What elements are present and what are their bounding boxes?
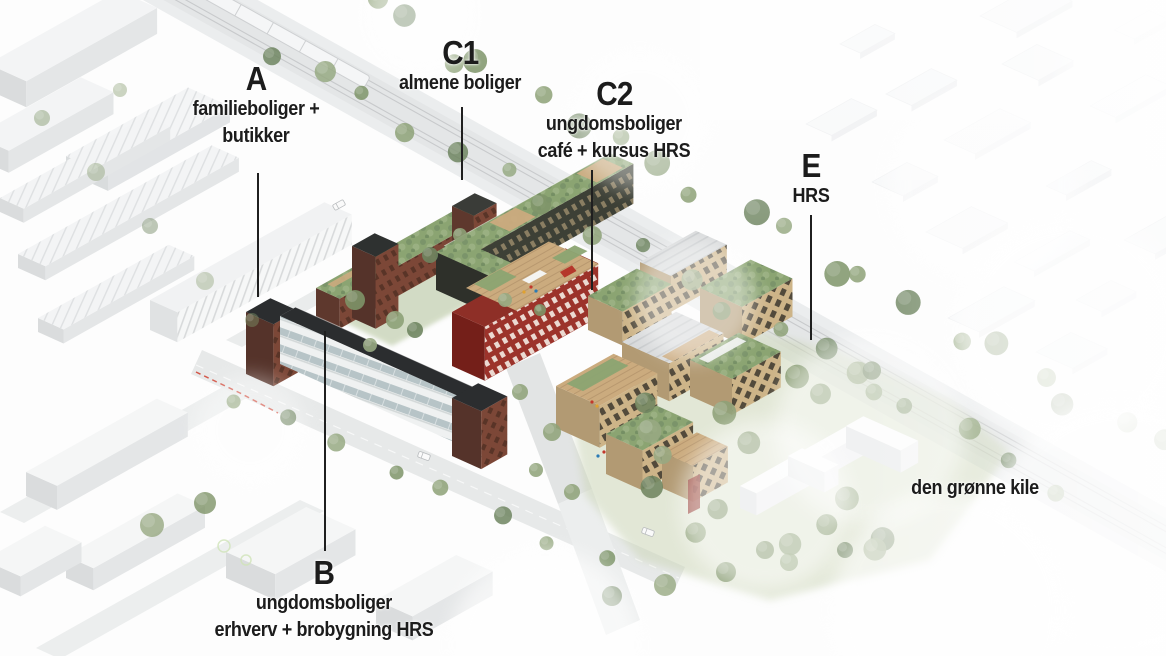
annotation-c2-line1: ungdomsboliger: [529, 111, 698, 138]
annotation-c2-letter: C2: [529, 77, 698, 111]
annotation-c1-line1: almene boliger: [392, 70, 528, 97]
annotation-c1: C1 almene boliger: [392, 36, 528, 97]
area-label-groenne-kile: den grønne kile: [904, 477, 1046, 500]
annotation-c2-line2: café + kursus HRS: [529, 138, 698, 165]
annotation-c2-leader-line: [591, 170, 593, 290]
annotation-a-line1: familieboliger +: [186, 96, 327, 123]
annotation-e-leader-line: [810, 215, 812, 340]
site-plan-stage: A familieboliger + butikker C1 almene bo…: [0, 0, 1166, 656]
annotation-e-line1: HRS: [790, 183, 831, 210]
annotation-a-letter: A: [186, 62, 327, 96]
annotation-b-leader-line: [324, 331, 326, 551]
annotation-b-letter: B: [202, 556, 445, 590]
annotation-c2: C2 ungdomsboliger café + kursus HRS: [529, 77, 698, 165]
annotation-c1-letter: C1: [392, 36, 528, 70]
annotation-e: E HRS: [790, 149, 831, 210]
annotation-b-line1: ungdomsboliger: [202, 590, 445, 617]
annotation-a-line2: butikker: [186, 123, 327, 150]
annotation-c1-leader-line: [461, 107, 463, 180]
annotation-e-letter: E: [790, 149, 831, 183]
annotation-b-line2: erhverv + brobygning HRS: [202, 617, 445, 644]
annotation-a: A familieboliger + butikker: [186, 62, 327, 150]
annotation-a-leader-line: [257, 173, 259, 297]
annotation-b: B ungdomsboliger erhverv + brobygning HR…: [202, 556, 445, 644]
